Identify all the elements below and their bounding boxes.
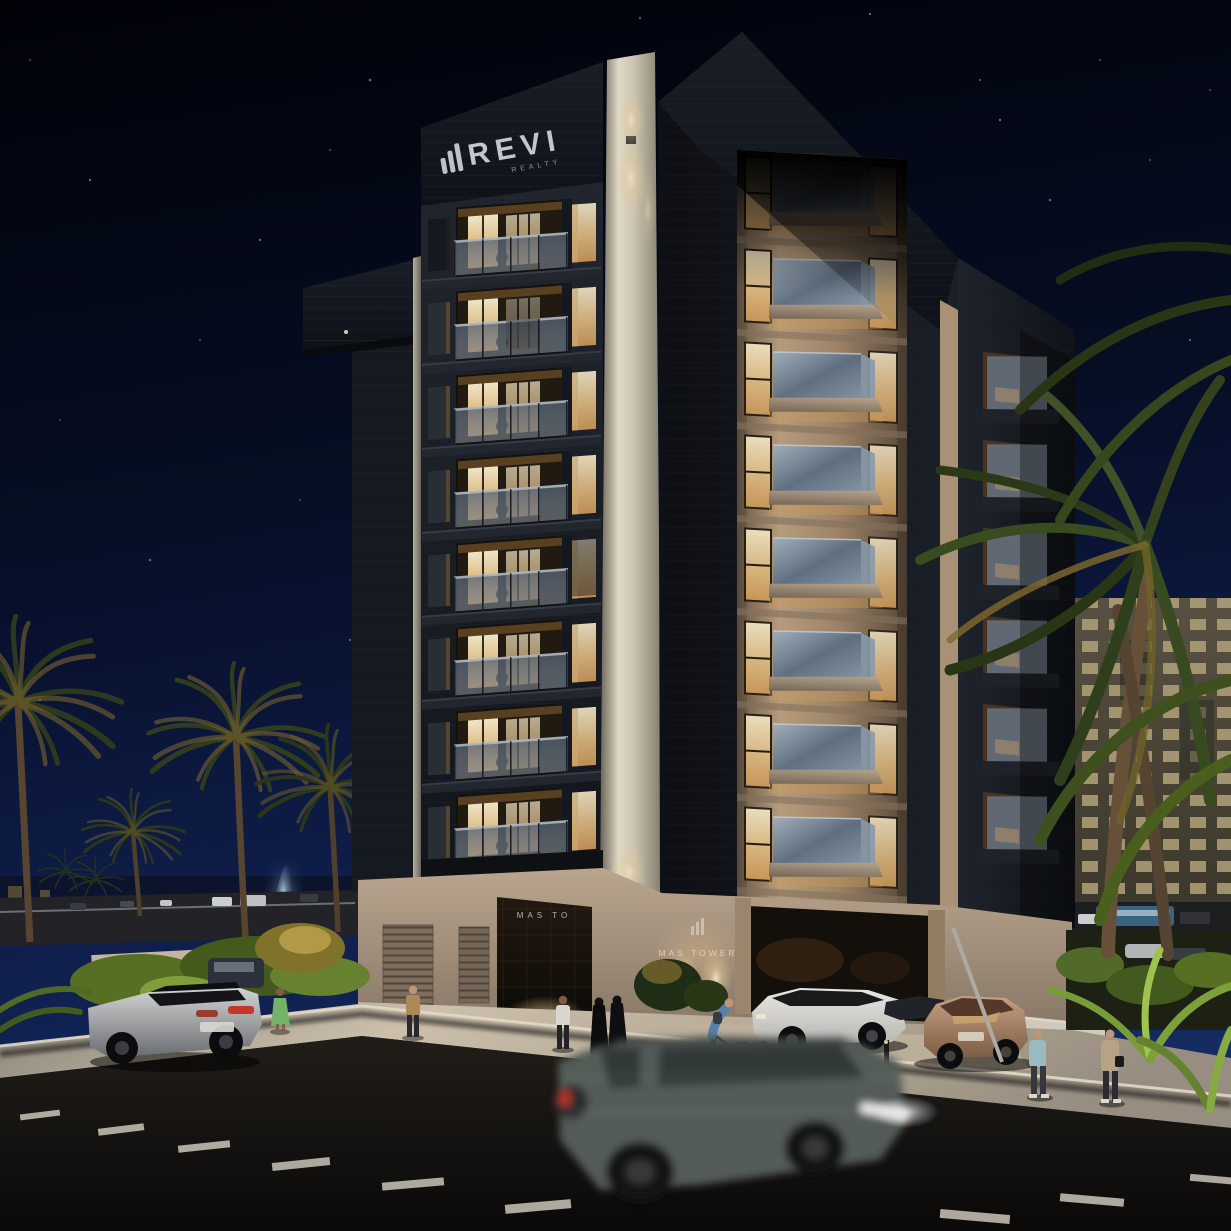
scene-canvas: REVI REALTY xyxy=(0,0,1231,1231)
night-render-scene: REVI REALTY xyxy=(0,0,1231,1231)
vignette xyxy=(0,0,1231,1231)
